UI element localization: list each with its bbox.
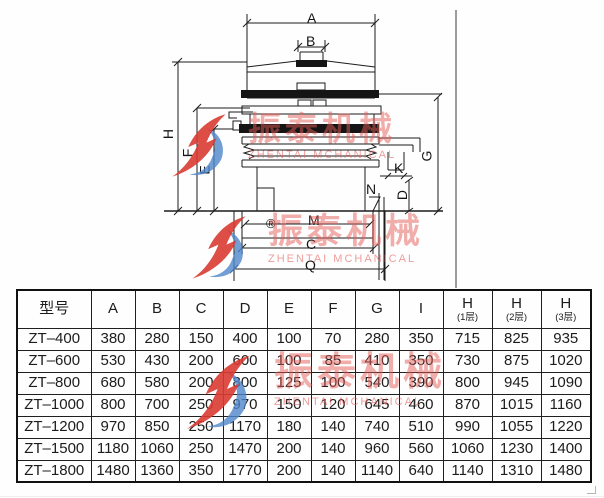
model-cell: ZT–1000 — [17, 394, 91, 416]
value-cell: 250 — [179, 438, 223, 460]
col-header-I: I — [399, 290, 443, 328]
col-header-C: C — [179, 290, 223, 328]
value-cell: 1230 — [492, 438, 541, 460]
col-header-H2: H(2层) — [492, 290, 541, 328]
value-cell: 1480 — [541, 460, 591, 482]
table-row: ZT–1200970850250117018014074051099010551… — [17, 416, 591, 438]
value-cell: 640 — [399, 460, 443, 482]
value-cell: 140 — [311, 460, 355, 482]
value-cell: 250 — [179, 394, 223, 416]
value-cell: 100 — [267, 350, 311, 372]
right-separator-line — [455, 10, 457, 288]
model-cell: ZT–800 — [17, 372, 91, 394]
value-cell: 1310 — [492, 460, 541, 482]
model-cell: ZT–400 — [17, 328, 91, 350]
value-cell: 970 — [223, 394, 267, 416]
dim-label-K: K — [394, 161, 403, 175]
model-cell: ZT–1500 — [17, 438, 91, 460]
dim-label-B: B — [306, 34, 315, 48]
value-cell: 200 — [179, 350, 223, 372]
value-cell: 200 — [267, 438, 311, 460]
value-cell: 560 — [399, 438, 443, 460]
dim-label-H: H — [161, 129, 175, 139]
value-cell: 1480 — [91, 460, 135, 482]
model-cell: ZT–1800 — [17, 460, 91, 482]
value-cell: 150 — [267, 394, 311, 416]
col-header-H3: H(3层) — [541, 290, 591, 328]
value-cell: 970 — [91, 416, 135, 438]
value-cell: 800 — [223, 372, 267, 394]
value-cell: 875 — [492, 350, 541, 372]
table-row: ZT–40038028015040010070280350715825935 — [17, 328, 591, 350]
col-header-A: A — [91, 290, 135, 328]
technical-drawing: A B H F E G K N D M C Q ® — [0, 0, 604, 289]
value-cell: 350 — [399, 328, 443, 350]
value-cell: 1470 — [223, 438, 267, 460]
value-cell: 1400 — [541, 438, 591, 460]
value-cell: 1220 — [541, 416, 591, 438]
table-row: ZT–8006805802008001251005403908009451090 — [17, 372, 591, 394]
col-header-G: G — [355, 290, 399, 328]
value-cell: 1170 — [223, 416, 267, 438]
value-cell: 800 — [91, 394, 135, 416]
machine-drawing-canvas — [0, 0, 604, 289]
value-cell: 100 — [311, 372, 355, 394]
value-cell: 700 — [135, 394, 179, 416]
value-cell: 140 — [311, 438, 355, 460]
value-cell: 280 — [135, 328, 179, 350]
table-row: ZT–1500118010602501470200140960560106012… — [17, 438, 591, 460]
dim-label-A: A — [307, 11, 316, 25]
value-cell: 120 — [311, 394, 355, 416]
col-header-E: E — [267, 290, 311, 328]
value-cell: 540 — [355, 372, 399, 394]
value-cell: 1140 — [443, 460, 492, 482]
value-cell: 600 — [223, 350, 267, 372]
dim-label-N: N — [366, 182, 376, 196]
value-cell: 150 — [179, 328, 223, 350]
dim-label-F: F — [180, 149, 194, 158]
spec-sheet-page: A B H F E G K N D M C Q ® 振泰机械 ZHENTAI M… — [0, 0, 604, 498]
value-cell: 250 — [179, 416, 223, 438]
value-cell: 390 — [399, 372, 443, 394]
value-cell: 870 — [443, 394, 492, 416]
value-cell: 70 — [311, 328, 355, 350]
col-header-H1: H(1层) — [443, 290, 492, 328]
col-header-F: F — [311, 290, 355, 328]
bottom-hairline — [0, 496, 604, 497]
machine-outline — [164, 14, 443, 254]
value-cell: 960 — [355, 438, 399, 460]
value-cell: 400 — [223, 328, 267, 350]
value-cell: 1060 — [135, 438, 179, 460]
value-cell: 715 — [443, 328, 492, 350]
value-cell: 125 — [267, 372, 311, 394]
col-header-D: D — [223, 290, 267, 328]
value-cell: 85 — [311, 350, 355, 372]
value-cell: 1060 — [443, 438, 492, 460]
value-cell: 680 — [91, 372, 135, 394]
value-cell: 180 — [267, 416, 311, 438]
value-cell: 200 — [179, 372, 223, 394]
value-cell: 580 — [135, 372, 179, 394]
value-cell: 850 — [135, 416, 179, 438]
dim-label-Q: Q — [305, 258, 316, 272]
col-header-B: B — [135, 290, 179, 328]
value-cell: 935 — [541, 328, 591, 350]
value-cell: 645 — [355, 394, 399, 416]
value-cell: 460 — [399, 394, 443, 416]
model-cell: ZT–1200 — [17, 416, 91, 438]
table-header-row: 型号ABCDEFGIH(1层)H(2层)H(3层) — [17, 290, 591, 328]
value-cell: 1360 — [135, 460, 179, 482]
value-cell: 140 — [311, 416, 355, 438]
dim-label-E: E — [198, 165, 212, 174]
value-cell: 530 — [91, 350, 135, 372]
value-cell: 825 — [492, 328, 541, 350]
value-cell: 1020 — [541, 350, 591, 372]
value-cell: 350 — [179, 460, 223, 482]
value-cell: 1015 — [492, 394, 541, 416]
table-row: ZT–600530430200600100854103507308751020 — [17, 350, 591, 372]
value-cell: 945 — [492, 372, 541, 394]
dim-label-M: M — [308, 213, 320, 227]
value-cell: 280 — [355, 328, 399, 350]
table-row: ZT–1000800700250970150120645460870101511… — [17, 394, 591, 416]
value-cell: 1090 — [541, 372, 591, 394]
value-cell: 1160 — [541, 394, 591, 416]
value-cell: 100 — [267, 328, 311, 350]
value-cell: 740 — [355, 416, 399, 438]
corner-artifact — [587, 486, 596, 494]
value-cell: 510 — [399, 416, 443, 438]
dim-label-D: D — [395, 190, 409, 200]
value-cell: 1770 — [223, 460, 267, 482]
registered-trademark-symbol: ® — [266, 217, 276, 230]
value-cell: 200 — [267, 460, 311, 482]
value-cell: 410 — [355, 350, 399, 372]
value-cell: 800 — [443, 372, 492, 394]
table-row: ZT–1800148013603501770200140114064011401… — [17, 460, 591, 482]
value-cell: 1055 — [492, 416, 541, 438]
value-cell: 1180 — [91, 438, 135, 460]
dim-label-C: C — [306, 237, 316, 251]
value-cell: 990 — [443, 416, 492, 438]
dimension-table: 型号ABCDEFGIH(1层)H(2层)H(3层) ZT–40038028015… — [16, 289, 592, 483]
value-cell: 730 — [443, 350, 492, 372]
value-cell: 380 — [91, 328, 135, 350]
value-cell: 350 — [399, 350, 443, 372]
dim-label-G: G — [419, 151, 433, 162]
model-cell: ZT–600 — [17, 350, 91, 372]
value-cell: 430 — [135, 350, 179, 372]
value-cell: 1140 — [355, 460, 399, 482]
col-header-model: 型号 — [17, 290, 91, 328]
